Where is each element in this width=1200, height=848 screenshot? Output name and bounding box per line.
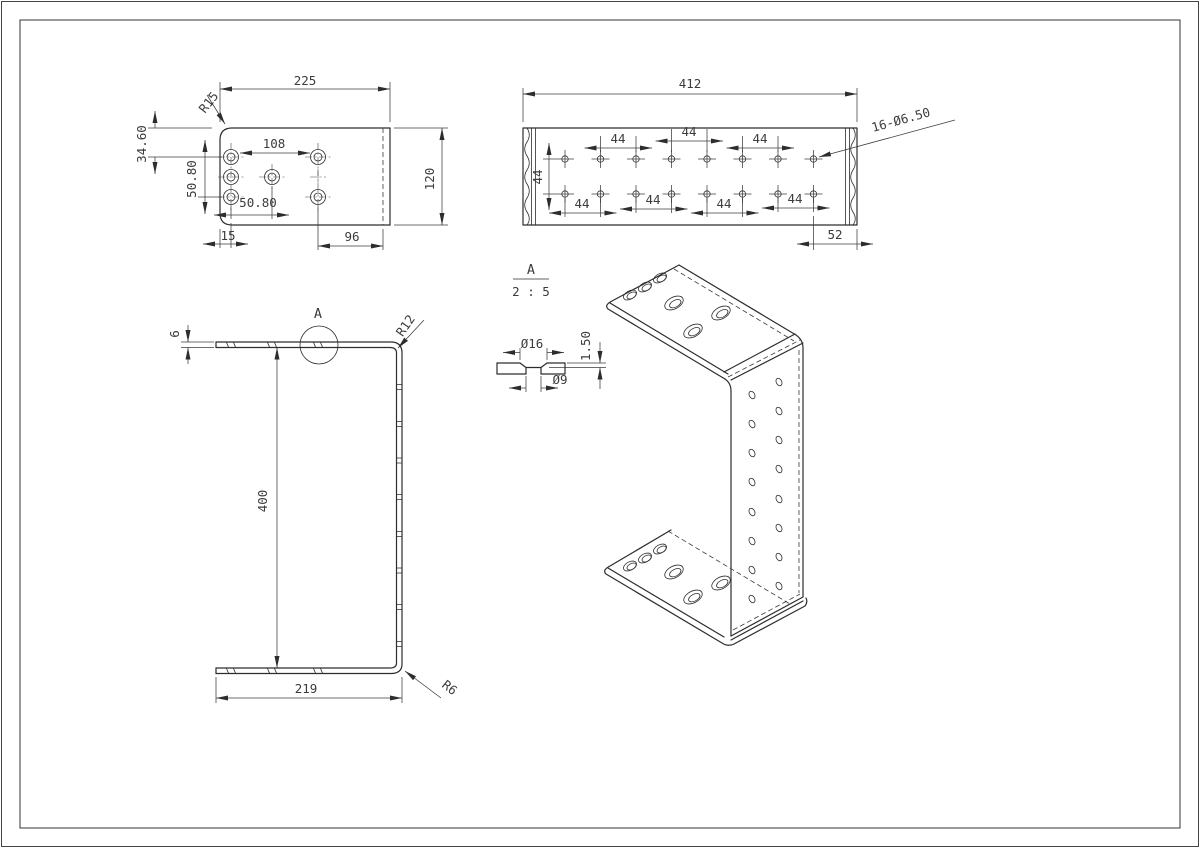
iso-bottom-flange-holes xyxy=(622,542,733,607)
dim-hole-pitch: 44 xyxy=(716,196,731,211)
dim-hole-pitch: 44 xyxy=(681,124,696,139)
profile-outer xyxy=(216,342,402,674)
dim-countersink-diameter: Ø16 xyxy=(521,336,544,351)
iso-bottom-bend-hidden xyxy=(733,594,800,630)
dim-hole-pitch-108: 108 xyxy=(263,136,286,151)
web-holes xyxy=(562,156,817,197)
profile-flange-hole-ticks xyxy=(227,342,323,673)
dim-bottom-bend-radius: R6 xyxy=(439,677,460,698)
dim-edge-to-hole: 34.60 xyxy=(134,125,149,163)
iso-web-bottom-edges xyxy=(731,597,803,640)
dim-hole-pitch: 44 xyxy=(574,196,589,211)
bend-zone-right xyxy=(846,128,856,225)
profile-view: A 6 400 219 R12 R6 xyxy=(167,306,460,703)
isometric-view xyxy=(605,265,807,645)
dim-vertical-pitch: 50.80 xyxy=(184,160,199,198)
dim-end-margin: 52 xyxy=(827,227,842,242)
dim-thickness: 6 xyxy=(167,330,182,338)
iso-top-flange-right-and-web-edge xyxy=(679,265,803,597)
dim-hole-pitch: 44 xyxy=(610,131,625,146)
web-outline xyxy=(523,128,857,225)
dim-height: 400 xyxy=(255,490,270,513)
profile-inner xyxy=(216,348,397,669)
detail-marker-label: A xyxy=(314,306,322,322)
iso-top-flange-holes xyxy=(622,271,733,341)
iso-bottom-hidden-edge xyxy=(668,531,790,604)
iso-top-bend-hidden xyxy=(728,340,800,377)
dim-hole-pitch: 44 xyxy=(752,131,767,146)
iso-top-flange-left xyxy=(607,265,731,636)
dim-hole-pitch: 44 xyxy=(787,191,802,206)
drawing-sheet: 225 120 108 34.60 50.80 50.80 15 xyxy=(0,0,1200,848)
dim-hole-diameter: Ø9 xyxy=(552,372,567,387)
cad-drawing: 225 120 108 34.60 50.80 50.80 15 xyxy=(0,0,1200,848)
dim-flange-length: 219 xyxy=(295,681,318,696)
web-view: 412 44 44 44 44 44 44 44 xyxy=(523,76,955,250)
iso-web-holes xyxy=(748,377,784,604)
dim-hole-pitch: 44 xyxy=(645,192,660,207)
iso-top-flange-front-edge xyxy=(610,303,728,374)
flange-top-view: 225 120 108 34.60 50.80 50.80 15 xyxy=(134,73,448,250)
flange-outline xyxy=(220,128,390,225)
web-hole-centerlines xyxy=(556,150,823,203)
sheet-inner-frame xyxy=(20,20,1180,828)
dim-countersink-depth: 1.50 xyxy=(578,331,593,361)
dim-second-horizontal-pitch: 50.80 xyxy=(239,195,277,210)
detail-circle xyxy=(300,326,338,364)
dim-hole-to-bend: 96 xyxy=(344,229,359,244)
dim-flange-width: 225 xyxy=(294,73,317,88)
iso-bottom-flange-front-edge xyxy=(608,568,724,637)
dim-row-pitch: 44 xyxy=(530,169,545,184)
detail-a-view: A 2 : 5 Ø16 Ø9 1.50 xyxy=(497,262,606,392)
dim-flange-depth: 120 xyxy=(422,168,437,191)
detail-scale: 2 : 5 xyxy=(512,284,550,299)
dim-top-bend-radius: R12 xyxy=(393,312,418,339)
dim-edge-margin: 15 xyxy=(220,228,235,243)
dim-web-length: 412 xyxy=(679,76,702,91)
profile-web-hole-ticks xyxy=(397,385,403,647)
detail-label: A xyxy=(527,262,535,278)
iso-top-hidden-edge xyxy=(674,269,794,341)
dim-hole-callout: 16-Ø6.50 xyxy=(870,104,932,135)
